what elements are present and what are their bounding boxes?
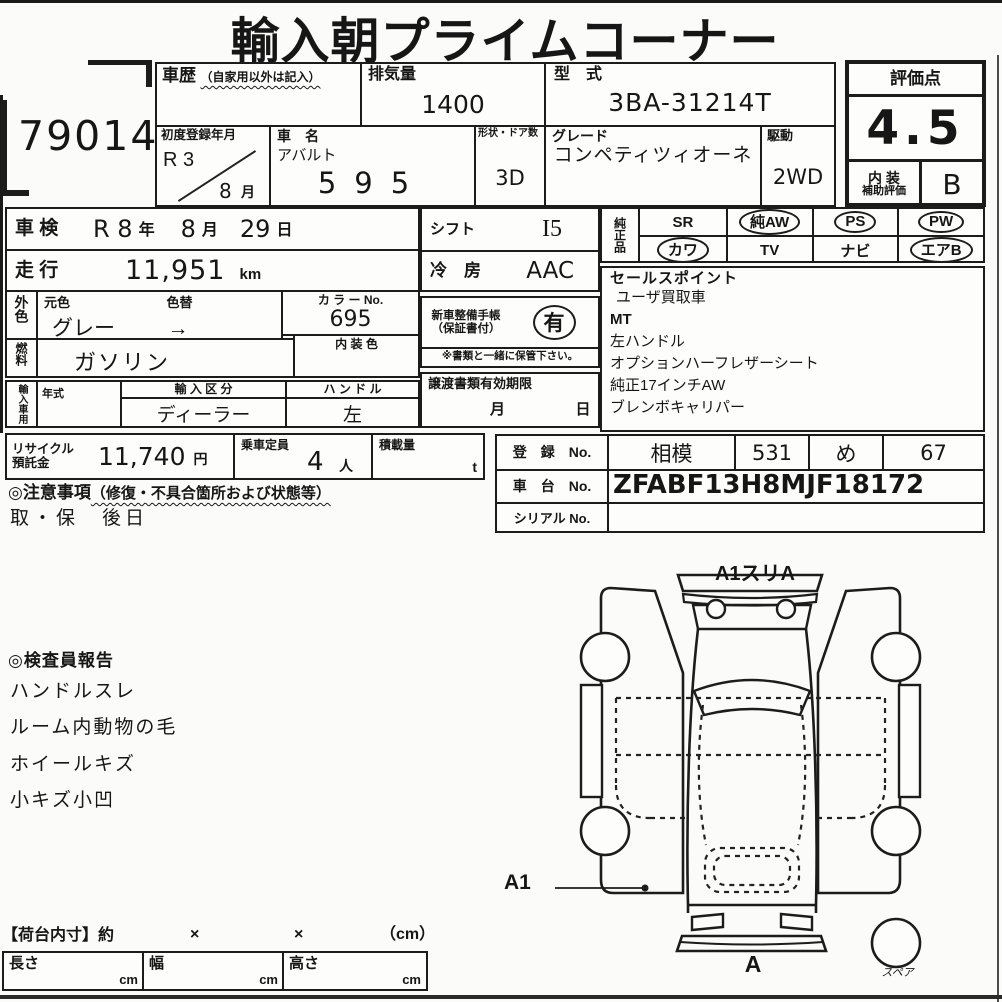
sales-point-item: 左ハンドル [610, 331, 975, 353]
registration-table: 登 録 No. 相模 531 め 67 車 台 No. ZFABF13H8MJF… [495, 434, 985, 533]
transfer-docs-label: 譲渡書類有効期限 [428, 377, 592, 391]
fuel-value-cell: ガソリン [36, 338, 295, 378]
part-navi: ナビ [812, 235, 898, 263]
part-airbag: エアB [897, 235, 983, 263]
aircon-value: AAC [526, 258, 574, 284]
body-doors-value: 3D [478, 166, 542, 190]
recycle-label: リサイクル 預託金 [12, 443, 98, 469]
load-unit: t [472, 460, 477, 475]
import-side-cell: 輸入車用 [5, 380, 38, 428]
score-value: 4.5 [849, 97, 982, 162]
grade-cell: グレード コンペティツィオーネ [544, 125, 762, 207]
drive-label: 駆動 [767, 129, 829, 143]
genuine-parts-side-label: 純正品 [602, 209, 640, 261]
interior-score-value: B [922, 162, 982, 207]
capacity-value: 4 [307, 447, 324, 477]
mileage-value: 11,951 [125, 255, 225, 286]
part-tv: TV [726, 235, 812, 263]
service-book-label: 新車整備手帳 （保証書付） [422, 310, 510, 334]
interior-score-label: 内 装 補助評価 [849, 162, 922, 207]
part-pw: PW [897, 209, 983, 235]
serial-no-label: シリアル No. [497, 504, 609, 533]
reg-no-label: 登 録 No. [497, 436, 609, 469]
mileage-unit: km [239, 267, 261, 283]
displacement-cell: 排気量 1400 [360, 62, 546, 127]
service-book-note: ※書類と一緒に保管下さい。 [422, 347, 598, 362]
sales-point-item: ブレンボキャリパー [610, 397, 975, 419]
lot-number: 79014 [18, 112, 158, 160]
cargo-length-cell: 長さ cm [2, 951, 145, 991]
part-leather: カワ [640, 235, 726, 263]
recycle-cell: リサイクル 預託金 11,740 円 [5, 433, 235, 480]
auction-sheet: 輸入朝プライムコーナー 79014 車歴 （自家用以外は記入） 排気量 1400… [0, 0, 1002, 1002]
fuel-value: ガソリン [74, 345, 293, 377]
mileage-label: 走 行 [15, 261, 125, 281]
capacity-cell: 乗車定員 4 人 [233, 433, 373, 480]
body-doors-label: 形状・ドア数 [478, 129, 542, 140]
displacement-label: 排気量 [368, 67, 538, 84]
grade-value: コンペティツィオーネ [552, 144, 754, 169]
exterior-color-cell: 元色 色替 グレー → [36, 290, 283, 340]
car-model: 595 [277, 166, 468, 200]
inspector-report-item: ホイールキズ [10, 749, 136, 776]
inspector-report-heading: ◎検査員報告 [8, 646, 114, 671]
genuine-parts-box: 純正品 SR 純AW PS PW カワ TV ナビ エアB [600, 207, 985, 263]
recycle-value: 11,740 [98, 442, 185, 471]
inspector-report-item: 小キズ小凹 [10, 785, 115, 812]
aircon-label: 冷 房 [430, 262, 526, 280]
diagram-spare-label: スペア [870, 964, 925, 980]
color-no-cell: カ ラ ー No. 695 [281, 290, 420, 336]
reg-no-region: 相模 [609, 436, 734, 469]
first-registration-era-year: R 3 [163, 149, 194, 172]
first-registration-month: 8 [219, 179, 232, 203]
sales-points-label: セールスポイント [610, 271, 975, 287]
inspector-report-item: ハンドルスレ [10, 676, 136, 703]
body-doors-cell: 形状・ドア数 3D [474, 125, 546, 207]
color-change-arrow: → [167, 317, 188, 340]
cargo-heading: 【荷台内寸】約 × × （cm） [2, 927, 432, 951]
load-cell: 積載量 t [371, 433, 485, 480]
displacement-value: 1400 [368, 90, 538, 119]
sales-point-item: ユーザ買取車 [616, 287, 975, 309]
cargo-width-cell: 幅 cm [142, 951, 285, 991]
fuel-side-cell: 燃料 [5, 338, 38, 378]
transfer-docs-box: 譲渡書類有効期限 月 日 [420, 372, 600, 428]
import-division-cell: 輸 入 区 分 ディーラー [120, 380, 287, 428]
grade-label: グレード [552, 129, 754, 144]
diagram-top-label: A1スリA [690, 557, 820, 586]
chassis-no-label: 車 台 No. [497, 471, 609, 502]
cautions-body: 取・保 後日 [10, 503, 148, 530]
inspector-report-item: ルーム内動物の毛 [10, 712, 177, 739]
first-registration-cell: 初度登録年月 R 3 8 月 [155, 125, 271, 207]
drive-value: 2WD [767, 165, 829, 189]
shift-label: シフト [430, 222, 542, 238]
import-division-value: ディーラー [122, 400, 285, 427]
import-year-cell: 年式 [36, 380, 122, 428]
sales-point-item: MT [610, 309, 975, 331]
reg-no-class: 531 [734, 436, 808, 469]
diagram-bottom-label: A [728, 951, 778, 978]
reg-no-number: 67 [882, 436, 983, 469]
interior-color-cell: 内 装 色 [293, 334, 420, 378]
service-book-value: 有 [533, 305, 576, 340]
model-code-label: 型 式 [554, 67, 826, 84]
first-registration-month-suffix: 月 [241, 185, 255, 200]
shift-row: シフト I5 [420, 207, 600, 252]
capacity-unit: 人 [339, 459, 353, 474]
model-code-cell: 型 式 3BA-31214T [544, 62, 836, 127]
shift-value: I5 [542, 216, 562, 243]
model-code-value: 3BA-31214T [554, 88, 826, 117]
recycle-unit: 円 [193, 452, 207, 467]
sales-point-item: 純正17インチAW [610, 375, 975, 397]
history-note: （自家用以外は記入） [200, 70, 320, 84]
cautions-heading: ◎注意事項（修復・不具合箇所および状態等） [8, 478, 331, 503]
car-name-cell: 車 名 アバルト 595 [269, 125, 476, 207]
exterior-side-cell: 外色 [5, 290, 38, 340]
inspection-row: 車 検 R 8 年 8 月 29 日 [5, 207, 420, 251]
aircon-row: 冷 房 AAC [420, 250, 600, 292]
chassis-no-value: ZFABF13H8MJF18172 [609, 471, 983, 502]
color-no-value: 695 [289, 307, 412, 332]
drive-cell: 駆動 2WD [760, 125, 836, 207]
bottom-edge-line [0, 995, 1002, 999]
mileage-row: 走 行 11,951 km [5, 249, 420, 292]
history-label: 車歴 [162, 66, 196, 85]
first-registration-label: 初度登録年月 [161, 129, 265, 142]
part-sr: SR [640, 209, 726, 235]
part-ps: PS [812, 209, 898, 235]
handle-cell: ハ ン ド ル 左 [285, 380, 420, 428]
history-cell: 車歴 （自家用以外は記入） [155, 62, 362, 127]
car-make: アバルト [277, 144, 468, 165]
serial-no-value [609, 504, 983, 533]
page-title: 輸入朝プライムコーナー [160, 2, 850, 60]
part-aw: 純AW [726, 209, 812, 235]
reg-no-kana: め [808, 436, 882, 469]
sales-points-box: セールスポイント ユーザ買取車 MT 左ハンドル オプションハーフレザーシート … [600, 266, 985, 432]
handle-value: 左 [287, 400, 418, 427]
sales-point-item: オプションハーフレザーシート [610, 353, 975, 375]
exterior-color-value: グレー [52, 317, 115, 340]
inspection-label: 車 検 [15, 219, 93, 239]
score-box: 評価点 4.5 内 装 補助評価 B [845, 60, 986, 207]
diagram-left-label: A1 [504, 871, 531, 895]
cargo-height-cell: 高さ cm [282, 951, 428, 991]
car-name-label: 車 名 [277, 129, 468, 144]
score-label: 評価点 [849, 64, 982, 97]
service-book-box: 新車整備手帳 （保証書付） 有 ※書類と一緒に保管下さい。 [420, 296, 600, 368]
lot-bracket-top-right [88, 60, 152, 87]
car-top-view-diagram [555, 545, 1000, 995]
